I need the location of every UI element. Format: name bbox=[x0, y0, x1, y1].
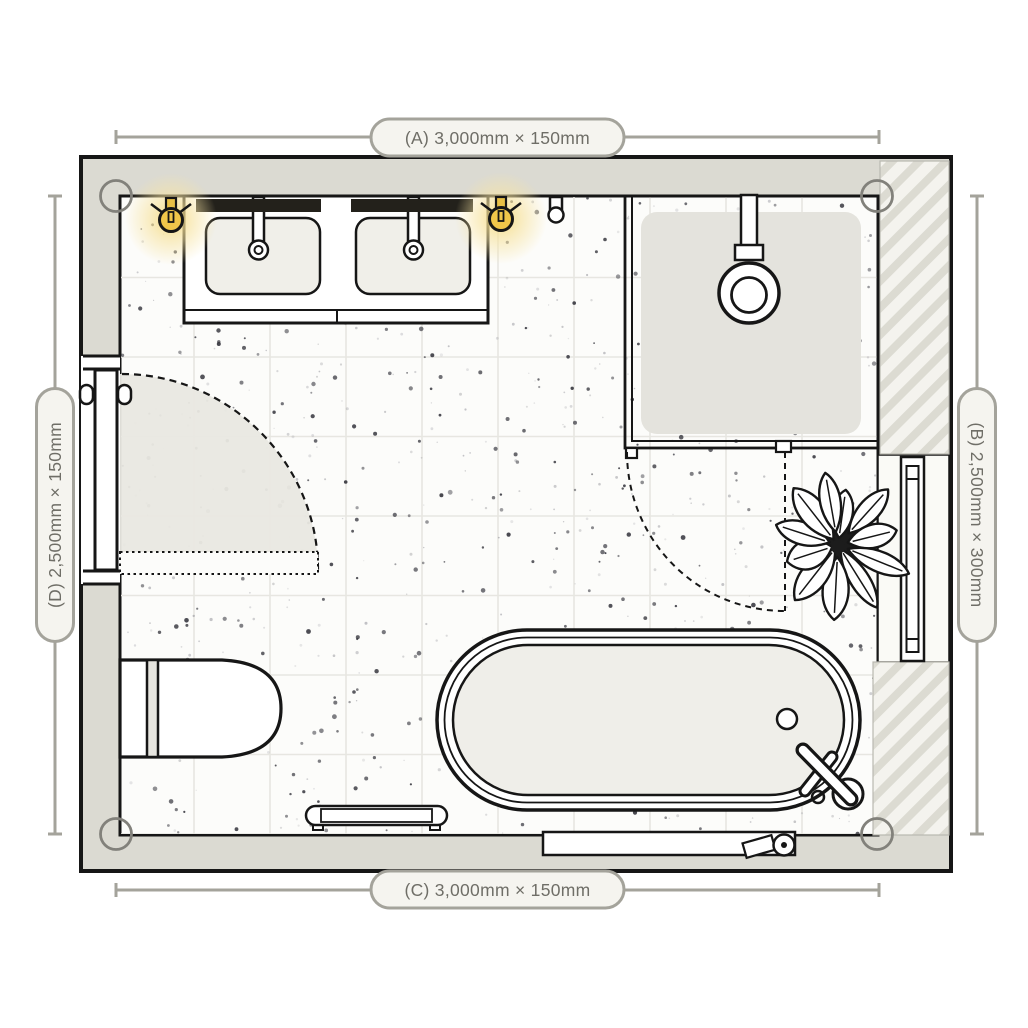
double-vanity bbox=[184, 196, 488, 323]
floor-plan: (A) 3,000mm × 150mm (C) 3,000mm × 150mm … bbox=[0, 0, 1028, 1028]
floor-plan-canvas: (A) 3,000mm × 150mm (C) 3,000mm × 150mm … bbox=[0, 0, 1028, 1028]
shower-door-handle bbox=[776, 441, 791, 452]
hatched-wall-bottom-right bbox=[873, 662, 949, 835]
tap-left-spout bbox=[249, 241, 268, 260]
mirror-right bbox=[351, 199, 473, 212]
dimension-left: (D) 2,500mm × 150mm bbox=[37, 196, 74, 834]
dimension-label-d: (D) 2,500mm × 150mm bbox=[45, 422, 65, 608]
wall-light-right bbox=[455, 172, 547, 264]
dimension-top: (A) 3,000mm × 150mm bbox=[116, 119, 879, 156]
bath-drain bbox=[777, 709, 797, 729]
dimension-label-c: (C) 3,000mm × 150mm bbox=[404, 880, 590, 900]
tap-right-spout bbox=[404, 241, 423, 260]
dimension-right: (B) 2,500mm × 300mm bbox=[959, 196, 996, 834]
dimension-label-b: (B) 2,500mm × 300mm bbox=[967, 422, 987, 607]
towel-radiator bbox=[901, 457, 924, 661]
bathtub bbox=[437, 630, 863, 810]
shower-arm-bracket bbox=[735, 245, 763, 260]
door-handle-inside bbox=[118, 385, 131, 404]
door-leaf bbox=[95, 370, 117, 570]
shower-arm bbox=[741, 195, 757, 251]
toilet bbox=[120, 660, 281, 757]
wall-niche bbox=[543, 832, 795, 858]
door-closed-position bbox=[120, 552, 318, 574]
toilet-cistern-divider bbox=[147, 660, 158, 757]
wall-light-left bbox=[125, 173, 217, 265]
toilet-body bbox=[120, 660, 281, 757]
robe-hook bbox=[549, 197, 564, 223]
dimension-label-a: (A) 3,000mm × 150mm bbox=[405, 128, 590, 148]
dimension-bottom: (C) 3,000mm × 150mm bbox=[116, 871, 879, 908]
door-handle-outside bbox=[80, 385, 93, 404]
